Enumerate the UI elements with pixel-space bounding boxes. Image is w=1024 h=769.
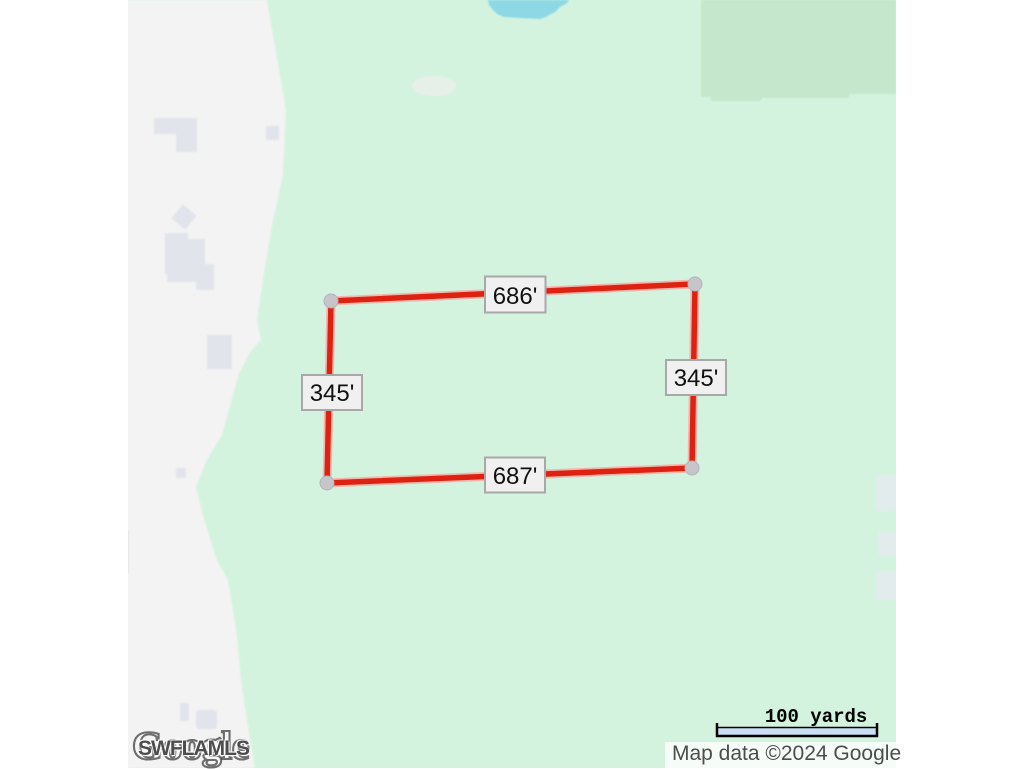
- svg-text:345': 345': [310, 380, 355, 407]
- svg-text:345': 345': [674, 365, 719, 392]
- svg-text:Map data ©2024 Google: Map data ©2024 Google: [672, 742, 901, 765]
- svg-text:100 yards: 100 yards: [765, 706, 868, 728]
- svg-text:686': 686': [493, 283, 538, 310]
- svg-text:687': 687': [493, 463, 538, 490]
